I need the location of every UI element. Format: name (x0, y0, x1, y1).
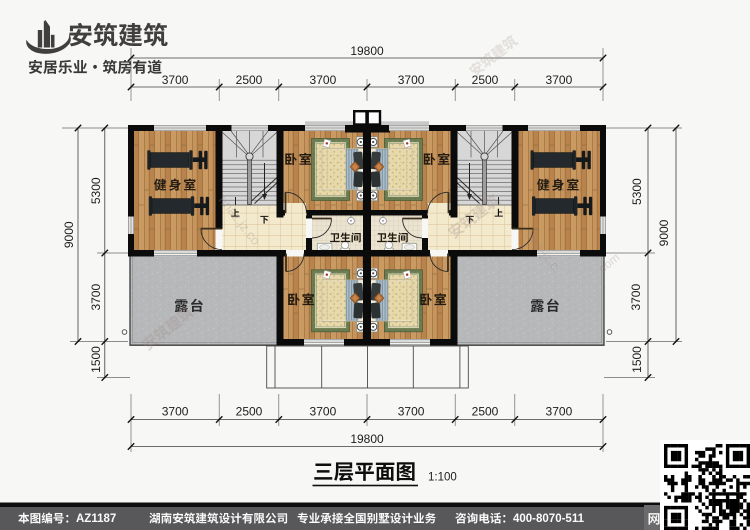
svg-text:3700: 3700 (629, 284, 643, 311)
svg-text:2500: 2500 (236, 73, 263, 87)
svg-text:3700: 3700 (89, 284, 103, 311)
svg-text:3700: 3700 (546, 405, 573, 419)
svg-text:1500: 1500 (630, 346, 644, 373)
svg-text:9000: 9000 (657, 219, 671, 246)
svg-text:3700: 3700 (162, 405, 189, 419)
svg-text:AZ1187: AZ1187 (76, 513, 116, 525)
svg-text:5300: 5300 (89, 177, 103, 204)
svg-text:19800: 19800 (350, 432, 384, 446)
svg-text:9000: 9000 (62, 221, 76, 248)
svg-text:1:100: 1:100 (428, 472, 457, 484)
svg-text:2500: 2500 (236, 405, 263, 419)
svg-text:2500: 2500 (472, 73, 499, 87)
svg-text:3700: 3700 (546, 73, 573, 87)
svg-text:3700: 3700 (162, 73, 189, 87)
svg-text:2500: 2500 (472, 405, 499, 419)
svg-text:1500: 1500 (89, 346, 103, 373)
svg-text:3700: 3700 (398, 405, 425, 419)
svg-text:3700: 3700 (398, 73, 425, 87)
svg-text:3700: 3700 (310, 405, 337, 419)
svg-text:5300: 5300 (630, 178, 644, 205)
svg-text:3700: 3700 (310, 73, 337, 87)
svg-text:400-8070-511: 400-8070-511 (513, 513, 585, 525)
svg-text:19800: 19800 (350, 44, 384, 58)
